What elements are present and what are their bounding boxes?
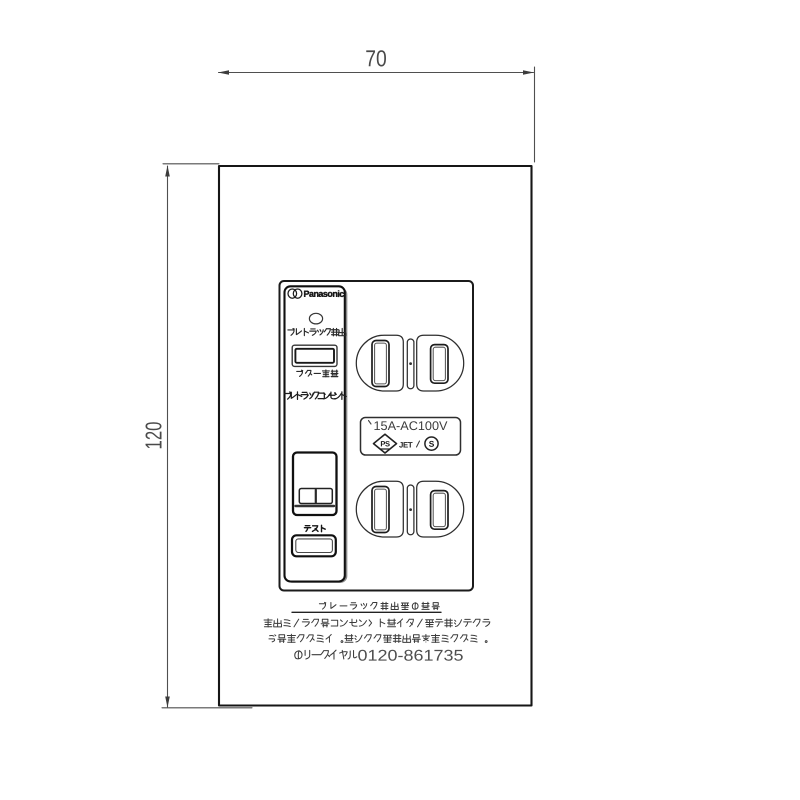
svg-text:Panasonic: Panasonic — [303, 289, 344, 299]
svg-text:JET: JET — [399, 441, 413, 450]
svg-text:S: S — [429, 439, 435, 449]
svg-text:0120-861735: 0120-861735 — [357, 648, 463, 665]
svg-text:120: 120 — [141, 422, 167, 450]
svg-text:70: 70 — [365, 45, 387, 71]
svg-text:PS: PS — [380, 439, 390, 448]
svg-text:15A-AC100V: 15A-AC100V — [373, 419, 448, 433]
